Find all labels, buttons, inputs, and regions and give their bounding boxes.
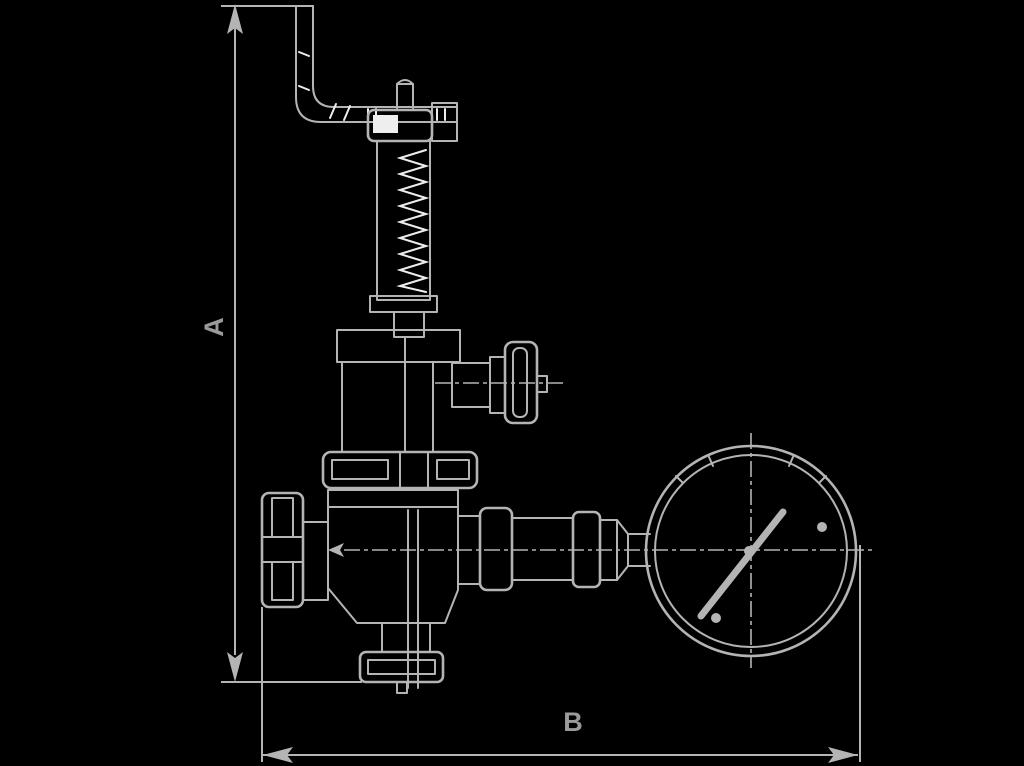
body-top-plate	[328, 490, 458, 507]
side-port-cylinder	[452, 363, 490, 407]
dimension-b-label: B	[563, 707, 583, 737]
flange-inner-right	[437, 460, 469, 479]
dimension-a-label: A	[199, 317, 229, 337]
spring-flange	[323, 452, 477, 488]
bonnet-hex	[337, 330, 460, 362]
gauge-connection-pipe	[458, 508, 650, 590]
gauge-needle	[701, 512, 783, 616]
gauge-dial-dot-right	[817, 522, 827, 532]
pipe-section	[512, 518, 573, 580]
handwheel-inner-top	[272, 498, 293, 537]
spring-neck	[394, 312, 424, 337]
handwheel-outer	[262, 493, 303, 607]
side-port-ring	[490, 357, 505, 413]
handwheel	[262, 493, 328, 607]
outlet-flange	[360, 623, 443, 693]
cap-highlight	[373, 115, 398, 133]
handwheel-inner-bottom	[272, 562, 293, 600]
valve-technical-drawing: A B	[0, 0, 1024, 766]
flow-arrow-icon	[328, 543, 344, 557]
side-port	[435, 342, 567, 423]
bonnet-block	[342, 362, 433, 452]
valve-body	[328, 490, 458, 688]
drain-stub	[397, 682, 407, 693]
bottom-flange-inner	[368, 660, 435, 674]
gauge-pivot	[744, 546, 754, 556]
body-outline	[328, 507, 458, 623]
spring-coils	[400, 150, 426, 292]
union-nut-1	[480, 508, 512, 590]
flange-inner-left	[332, 460, 388, 479]
handwheel-stem	[303, 522, 328, 600]
adjusting-cap	[368, 80, 457, 141]
bottom-flange	[360, 652, 443, 682]
dimension-a-arrow-down-icon	[227, 652, 243, 682]
bonnet	[337, 330, 460, 452]
side-port-stub	[537, 376, 547, 392]
spring-seat	[370, 296, 437, 312]
spring-housing	[370, 141, 437, 337]
lever-inner-edge	[313, 6, 457, 107]
gauge-dial-dot-left	[711, 613, 721, 623]
